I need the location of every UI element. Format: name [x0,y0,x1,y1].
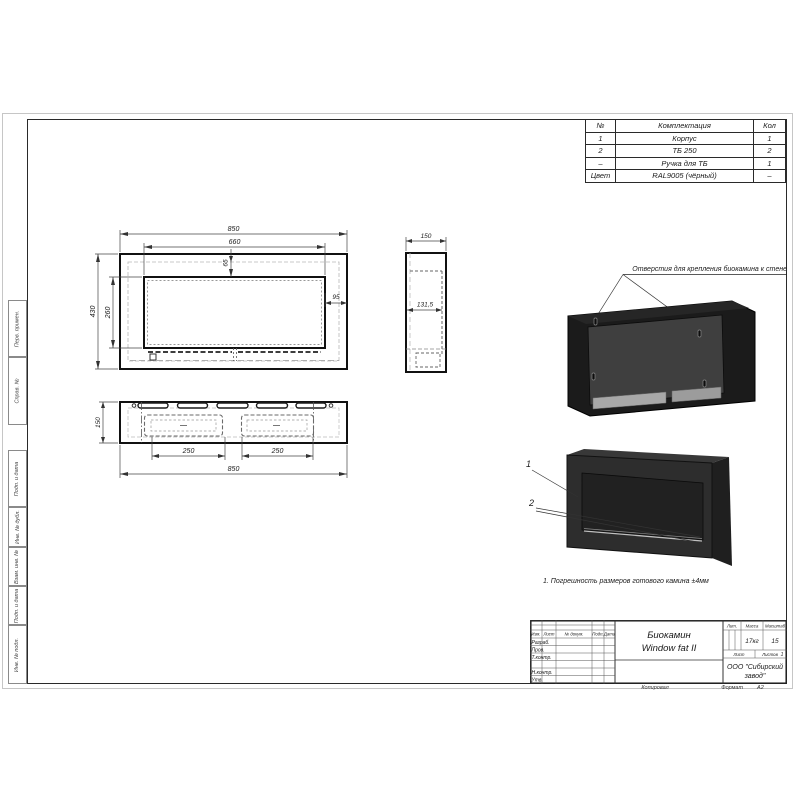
format-label: Формат [721,685,743,691]
frame-label: Подп. и дата [15,588,21,622]
cell-qty: 1 [754,157,786,170]
frame-cell-vzam-inv: Взам. инв. № [8,547,27,586]
row-utv: Утв. [532,677,543,683]
format-value: А2 [757,685,764,691]
mounting-hole [698,330,701,337]
listov-value: 1 [781,652,784,658]
product-title-line2: Window fat II [642,643,697,654]
cell-qty: 1 [754,132,786,145]
parts-table-row: – Ручка для ТБ 1 [586,157,786,170]
massa-value: 17кг [745,638,759,645]
cell-number: 1 [586,132,616,145]
frame-label: Взам. инв. № [15,549,21,583]
massa-label: Масса [746,624,759,629]
col-podp: Подп. [592,632,603,637]
title-block-left-headers: Изм. Лист № докум. Подп. Дата [531,632,615,637]
row-prov: Пров. [532,647,545,653]
mounting-hole [592,373,595,380]
side-view-contours [406,253,446,372]
parts-table-row: 2 ТБ 250 2 [586,145,786,158]
mounting-hole [703,380,706,387]
dimension-150-bottom: 150 [95,402,118,443]
dim-131-5-label: 131,5 [417,302,434,309]
frame-label: Перв. примен. [15,310,21,347]
col-ndokum: № докум. [565,632,584,637]
drawing-sheet: Перв. примен. Справ. № Подп. и дата Инв.… [0,0,800,800]
kopiroval-label: Копировал [615,685,695,691]
cell-name: RAL9005 (чёрный) [616,170,754,183]
cell-number: Цвет [586,170,616,183]
frame-cell-podp-data-2: Подп. и дата [8,586,27,625]
format-row: Формат А2 [700,685,785,691]
fireplace-front-render [567,449,732,566]
dim-850-label: 850 [228,226,240,233]
dim-150-label: 150 [421,233,432,240]
frame-label: Инв. № подл. [15,637,21,671]
dim-260-label: 260 [105,307,112,320]
bottom-view-drawing: 150 250 250 850 [85,392,380,487]
row-tkontr: Т.контр. [532,655,552,661]
col-data: Дата [603,632,616,637]
dim-660-label: 660 [229,239,241,246]
masshtab-label: Масштаб [765,624,786,629]
list-label: Лист [732,652,744,657]
callout-2-label: 2 [528,498,534,508]
side-view-drawing: 150 131,5 [388,225,483,385]
frame-cell-sprav-no: Справ. № [8,357,27,425]
callout-1-label: 1 [526,459,531,469]
back-3d-view: Отверстия для крепления биокамина к стен… [553,255,793,425]
col-header-qty: Кол [754,120,786,133]
frame-cell-inv-podl: Инв. № подл. [8,625,27,684]
mounting-hole [594,318,597,325]
cell-qty: 2 [754,145,786,158]
dim-150-bottom-label: 150 [95,417,102,428]
parts-table-row: 1 Корпус 1 [586,132,786,145]
col-header-number: № [586,120,616,133]
cell-number: – [586,157,616,170]
front-3d-view: 1 2 1. Погрешность размеров готового кам… [500,440,750,598]
col-izm: Изм. [531,632,540,637]
cell-qty: – [754,170,786,183]
frame-cell-perv-primen: Перв. примен. [8,300,27,357]
cell-name: ТБ 250 [616,145,754,158]
company-name-line1: ООО "Сибирский [727,663,783,671]
fireplace-back-render [568,301,755,416]
parts-table-row: Цвет RAL9005 (чёрный) – [586,170,786,183]
product-title-line1: Биокамин [647,630,691,641]
title-block-right-headers: Лит. Масса Масштаб [726,624,786,629]
dim-250-right-label: 250 [271,448,284,455]
col-list: Лист [542,632,554,637]
frame-cell-podp-data-1: Подп. и дата [8,450,27,507]
dim-250-left-label: 250 [182,448,195,455]
parts-table-header-row: № Комплектация Кол [586,120,786,133]
frame-label: Инв. № дубл. [15,510,21,544]
cell-name: Ручка для ТБ [616,157,754,170]
frame-label: Подп. и дата [15,461,21,495]
dim-95-label: 95 [332,294,340,301]
bottom-view-contours [120,402,347,443]
dimension-150-side: 150 [406,233,446,251]
dim-850-bottom-label: 850 [228,466,240,473]
cell-name: Корпус [616,132,754,145]
lit-label: Лит. [726,624,737,629]
tolerance-note: 1. Погрешность размеров готового камина … [543,578,709,585]
parts-table: № Комплектация Кол 1 Корпус 1 2 ТБ 250 2… [585,119,786,183]
listov-label: Листов [761,652,778,657]
col-header-komplektacia: Комплектация [616,120,754,133]
dim-430-label: 430 [90,306,97,318]
frame-label: Справ. № [15,379,21,404]
company-name-line2: завод" [744,672,766,680]
front-view-contours [120,254,347,369]
cell-number: 2 [586,145,616,158]
front-view-drawing: 850 660 430 260 65 [85,215,375,387]
row-razrab: Разраб. [532,640,550,646]
mounting-note-label: Отверстия для крепления биокамина к стен… [632,265,787,273]
row-nkontr: Н.контр. [532,670,553,676]
dimension-430: 430 [90,254,118,369]
dim-65-label: 65 [223,259,230,267]
title-block: Изм. Лист № докум. Подп. Дата Разраб. Пр… [530,620,787,684]
masshtab-value: 15 [771,638,779,645]
frame-cell-inv-dubl: Инв. № дубл. [8,507,27,547]
